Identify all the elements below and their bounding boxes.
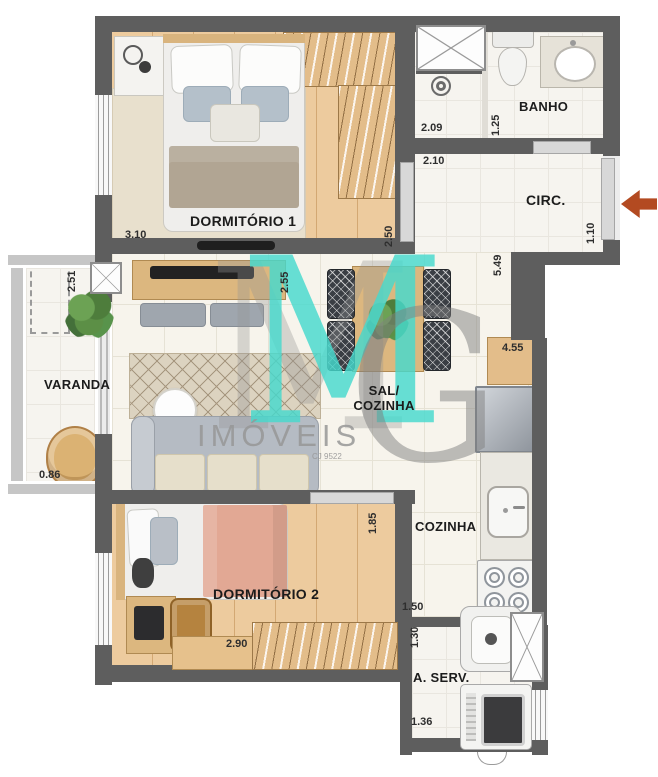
dim-circ-entry: 1.10 [585,223,597,244]
future-furniture-dashed [30,262,70,334]
burner-icon [508,567,529,588]
label-banho: BANHO [519,99,568,114]
toilet-bowl [498,47,527,86]
dorm2-wardrobe [252,622,398,670]
faucet-icon [513,506,525,509]
dorm1-window [95,95,112,195]
dim-aserv-depth: 1.30 [409,627,421,648]
dorm1-wardrobe-side [338,85,397,199]
wall-sala-left-bottom [95,434,112,498]
dim-banho-shower: 2.09 [421,122,442,134]
toilet [492,29,532,85]
lamp-base-icon [139,61,151,73]
shower-icon [431,76,451,96]
sofa-armrest [131,416,155,496]
dim-circ-length: 5.49 [492,255,504,276]
headboard [163,34,305,43]
faucet-icon [570,40,576,46]
varanda-plant [64,286,114,340]
dim-varanda-depth: 2.51 [66,271,78,292]
blanket [169,146,299,208]
label-circ: CIRC. [526,192,566,208]
dim-dorm1-depth: 2.50 [383,226,395,247]
washer-door [481,694,525,746]
label-sala-line1: SAL/ [369,383,400,398]
dim-dorm1-width: 3.10 [125,229,146,241]
dim-dorm2-width: 2.90 [226,638,247,650]
label-dormitorio1: DORMITÓRIO 1 [190,213,296,229]
dim-circ-top: 2.10 [423,155,444,167]
shaft-box [416,25,486,71]
drain-icon [485,633,497,645]
dim-varanda-width: 0.86 [39,469,60,481]
burner-icon [484,567,505,588]
basin-icon [554,46,596,82]
floor-plan: M M G IMÓVEIS CJ 9522 DORMITÓRIO 1 BANHO… [0,0,658,777]
washer-panel [466,693,476,741]
dim-cozinha-width: 1.50 [402,601,423,613]
pillow [150,517,178,565]
varanda-rail-left [8,252,26,497]
column-box [90,262,122,294]
label-sala-line2: COZINHA [353,398,414,413]
sofa-cushion [155,454,205,492]
wall-top [95,16,620,32]
wall-banho-right [603,16,620,156]
bed-double [163,34,305,232]
ottoman [140,303,206,327]
drain-icon [503,508,508,513]
washing-machine [460,684,532,750]
aserv-window [532,690,548,740]
wall-kitchen-right [532,338,547,625]
cushion-small [210,104,260,142]
label-sala: SAL/ COZINHA [347,383,421,413]
nightstand [114,36,164,96]
shaft-box [510,612,544,682]
watermark-registry: CJ 9522 [312,452,342,461]
headboard [116,503,125,600]
dim-sala-depth: 2.55 [279,272,291,293]
door-swing-arc [477,752,507,765]
dim-banho-depth: 1.25 [490,115,502,136]
entry-door [601,158,615,240]
bedside-lamp [132,558,154,588]
label-aserv: A. SERV. [413,670,470,685]
entry-arrow-icon [621,190,657,218]
dorm2-window [95,553,112,645]
watermark-brand: IMÓVEIS [197,418,361,454]
wall-step [511,252,545,340]
blanket [203,505,287,597]
laptop [134,606,164,640]
label-cozinha: COZINHA [415,519,476,534]
banho-door [533,141,591,154]
dim-dorm2-depth: 1.85 [367,513,379,534]
bathroom-vanity [540,36,608,88]
dim-aserv-width: 1.36 [411,716,432,728]
label-varanda: VARANDA [44,377,110,392]
label-dormitorio2: DORMITÓRIO 2 [213,586,319,602]
dim-cozinha-length: 4.55 [502,342,523,354]
